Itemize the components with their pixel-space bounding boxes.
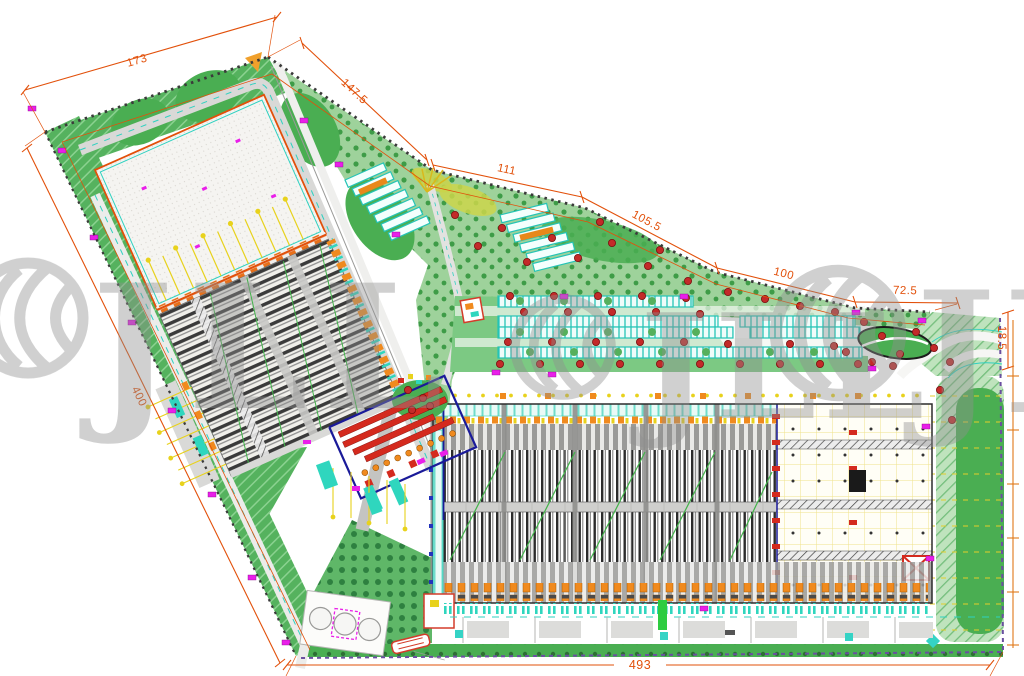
- watermark-text-3: JLL: [903, 254, 1024, 452]
- site-plan-page: 173 147.5 111 105.5 100 72.5 18.5 400 49…: [0, 0, 1024, 676]
- dim-top-5: 100: [772, 266, 795, 283]
- sprinkler-tanks: [300, 590, 391, 655]
- site-plan-drawing: 173 147.5 111 105.5 100 72.5 18.5 400 49…: [0, 0, 1024, 676]
- watermark-text-1: JLL: [79, 246, 457, 449]
- dim-top-3: 111: [496, 162, 517, 178]
- stair-core: [849, 470, 866, 492]
- car-glyph: [725, 630, 735, 635]
- trailer-pads: [467, 621, 933, 638]
- center-aisle: [435, 502, 777, 512]
- dim-bottom-side: 493: [629, 658, 651, 672]
- green-bar-marker: [658, 600, 667, 630]
- gatehouse: [460, 297, 484, 322]
- truck-court: [440, 600, 1000, 643]
- watermark-text-2: JLL: [629, 283, 931, 453]
- dim-top-2: 147.5: [339, 77, 370, 107]
- dim-top-1: 173: [126, 52, 149, 69]
- dock-trucks-row: [440, 583, 928, 601]
